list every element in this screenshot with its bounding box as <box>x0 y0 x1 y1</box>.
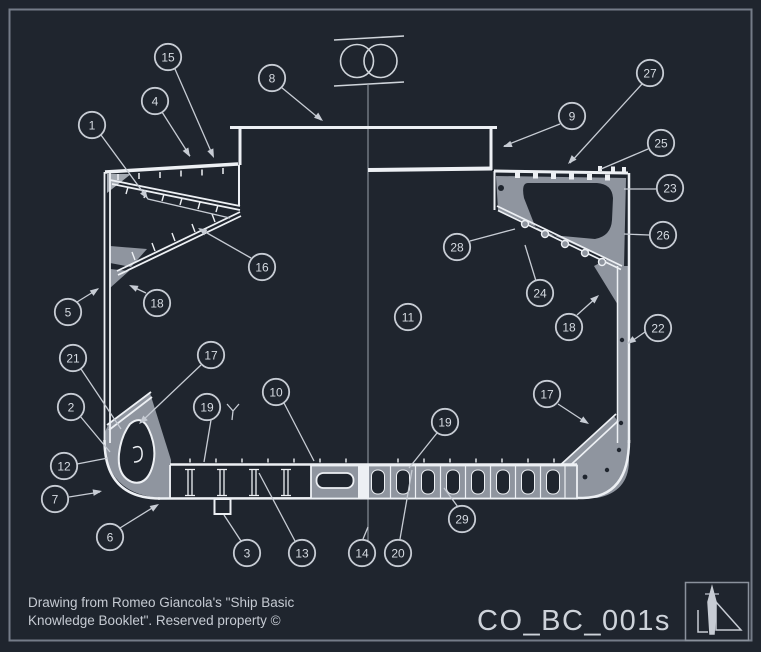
svg-text:27: 27 <box>643 66 657 80</box>
svg-text:21: 21 <box>66 351 80 365</box>
callout-balloon-3: 3 <box>234 540 260 566</box>
svg-text:29: 29 <box>455 512 469 526</box>
main-deck-right <box>494 171 628 173</box>
drawing-canvas: 1234567891011121314151617171818191920212… <box>0 0 761 652</box>
callout-balloon-8: 8 <box>259 65 285 91</box>
svg-text:18: 18 <box>562 320 576 334</box>
callout-balloon-17: 17 <box>198 342 224 368</box>
svg-text:4: 4 <box>152 94 159 108</box>
callout-balloon-29: 29 <box>449 506 475 532</box>
svg-text:17: 17 <box>540 387 554 401</box>
svg-text:19: 19 <box>200 400 214 414</box>
svg-text:1: 1 <box>89 118 96 132</box>
credit-line-2: Knowledge Booklet". Reserved property © <box>28 613 281 628</box>
double-bottom-floor-band <box>311 466 577 499</box>
callout-balloon-18: 18 <box>144 290 170 316</box>
callout-balloon-20: 20 <box>385 540 411 566</box>
callout-balloon-14: 14 <box>349 540 375 566</box>
callout-balloon-1: 1 <box>79 112 105 138</box>
callout-balloon-10: 10 <box>263 379 289 405</box>
svg-text:26: 26 <box>656 228 670 242</box>
callout-balloon-13: 13 <box>289 540 315 566</box>
svg-text:2: 2 <box>68 400 75 414</box>
svg-text:28: 28 <box>450 240 464 254</box>
svg-text:3: 3 <box>244 546 251 560</box>
callout-balloon-15: 15 <box>155 44 181 70</box>
svg-text:17: 17 <box>204 348 218 362</box>
callout-balloon-27: 27 <box>637 60 663 86</box>
callout-balloon-26: 26 <box>650 222 676 248</box>
svg-text:12: 12 <box>57 459 71 473</box>
callout-balloon-16: 16 <box>249 254 275 280</box>
svg-text:15: 15 <box>161 50 175 64</box>
svg-text:5: 5 <box>65 305 72 319</box>
callout-balloon-18: 18 <box>556 314 582 340</box>
main-deck-center <box>368 169 492 171</box>
callout-balloon-17: 17 <box>534 381 560 407</box>
svg-text:10: 10 <box>269 385 283 399</box>
callout-balloon-5: 5 <box>55 299 81 325</box>
svg-text:7: 7 <box>52 492 59 506</box>
callout-balloon-23: 23 <box>657 175 683 201</box>
callout-balloon-24: 24 <box>527 280 553 306</box>
side-frame-strip-right <box>618 266 630 443</box>
callout-balloon-28: 28 <box>444 234 470 260</box>
svg-text:24: 24 <box>533 286 547 300</box>
svg-text:8: 8 <box>269 71 276 85</box>
callout-balloon-2: 2 <box>58 394 84 420</box>
svg-text:13: 13 <box>295 546 309 560</box>
svg-text:25: 25 <box>654 136 668 150</box>
manhole-slot <box>317 473 354 488</box>
svg-text:11: 11 <box>402 310 415 324</box>
callout-balloon-12: 12 <box>51 453 77 479</box>
svg-text:14: 14 <box>355 546 369 560</box>
callout-balloon-19: 19 <box>432 409 458 435</box>
web-drain-hole <box>498 185 504 191</box>
svg-text:19: 19 <box>438 415 452 429</box>
callout-balloon-7: 7 <box>42 486 68 512</box>
svg-text:9: 9 <box>569 109 576 123</box>
callout-balloon-19: 19 <box>194 394 220 420</box>
credit-line-1: Drawing from Romeo Giancola's "Ship Basi… <box>28 595 294 610</box>
svg-text:16: 16 <box>255 260 269 274</box>
callout-balloon-6: 6 <box>97 524 123 550</box>
doc-code: CO_BC_001s <box>477 605 671 637</box>
svg-text:6: 6 <box>107 530 114 544</box>
svg-text:22: 22 <box>651 321 665 335</box>
center-girder <box>358 466 369 498</box>
callout-balloon-11: 11 <box>395 304 421 330</box>
callout-balloon-21: 21 <box>60 345 86 371</box>
callout-balloon-25: 25 <box>648 130 674 156</box>
callout-balloon-4: 4 <box>142 88 168 114</box>
svg-text:20: 20 <box>391 546 405 560</box>
svg-text:23: 23 <box>663 181 677 195</box>
callout-balloon-22: 22 <box>645 315 671 341</box>
drain-well <box>215 499 231 514</box>
ship-midship-section-drawing: 1234567891011121314151617171818191920212… <box>0 0 761 652</box>
svg-text:18: 18 <box>150 296 164 310</box>
callout-balloon-9: 9 <box>559 103 585 129</box>
